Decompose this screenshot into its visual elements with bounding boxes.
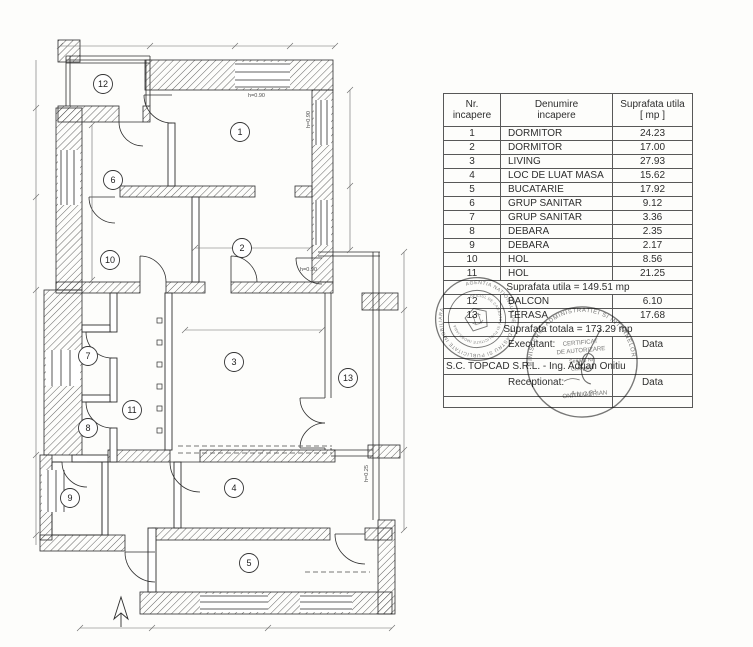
room-label-1: 1 [231,123,250,142]
svg-text:8: 8 [85,423,90,433]
table-row: 10HOL8.56 [444,253,693,267]
room-label-7: 7 [79,347,98,366]
svg-text:5: 5 [246,558,251,568]
cell-area: 17.00 [613,141,693,155]
svg-text:10: 10 [105,255,115,265]
room-label-2: 2 [233,239,252,258]
table-row: 4LOC DE LUAT MASA15.62 [444,169,693,183]
cell-name: DORMITOR [501,127,613,141]
cell-area: 27.93 [613,155,693,169]
cell-name: DEBARA [501,239,613,253]
cell-nr: 4 [444,169,501,183]
annotation-label: h=0.90 [248,93,265,99]
svg-text:3: 3 [231,357,236,367]
cell-nr: 2 [444,141,501,155]
room-label-10: 10 [101,251,120,270]
header-name: Denumire incapere [501,94,613,127]
cell-nr: 5 [444,183,501,197]
svg-text:12: 12 [98,79,108,89]
svg-text:2: 2 [239,243,244,253]
annotation-label: h=0.90 [300,267,317,273]
stamp-ring-inner-text: OFICIUL DE CADASTRU SI PUBLICITATE IMOBI… [445,287,508,350]
svg-text:9: 9 [67,493,72,503]
table-row: 3LIVING27.93 [444,155,693,169]
cell-name: LIVING [501,155,613,169]
room-label-4: 4 [225,479,244,498]
north-arrow-icon [114,597,128,627]
room-label-6: 6 [104,171,123,190]
cell-name: BUCATARIE [501,183,613,197]
cell-nr: 8 [444,225,501,239]
cell-area: 24.23 [613,127,693,141]
cell-name: DEBARA [501,225,613,239]
cell-name: HOL [501,253,613,267]
cell-area: 3.36 [613,211,693,225]
cell-nr: 7 [444,211,501,225]
cell-area: 2.17 [613,239,693,253]
scanned-floor-plan-page: h=0.90 h=0.90 h=0.90 h=0.25 1 2 3 4 5 6 … [0,0,753,647]
svg-text:OFICIUL DE CADASTRU SI PUBLICI: OFICIUL DE CADASTRU SI PUBLICITATE IMOBI… [445,287,508,350]
room-label-13: 13 [339,369,358,388]
cell-name: GRUP SANITAR [501,197,613,211]
cell-area: 8.56 [613,253,693,267]
svg-text:7: 7 [85,351,90,361]
table-row: 2DORMITOR17.00 [444,141,693,155]
stamp-signature [560,329,606,386]
svg-text:6: 6 [110,175,115,185]
table-row: 9DEBARA2.17 [444,239,693,253]
floor-plan: h=0.90 h=0.90 h=0.90 h=0.25 1 2 3 4 5 6 … [0,0,440,647]
cell-area: 21.25 [613,267,693,281]
cell-name: HOL [501,267,613,281]
svg-text:4: 4 [231,483,236,493]
cell-area: 2.35 [613,225,693,239]
cell-name: DORMITOR [501,141,613,155]
cell-name: GRUP SANITAR [501,211,613,225]
cell-nr: 3 [444,155,501,169]
header-area: Suprafata utila [ mp ] [613,94,693,127]
cell-area: 17.92 [613,183,693,197]
stamp-line: ONITIU ADRIAN [562,389,607,400]
table-row: 7GRUP SANITAR3.36 [444,211,693,225]
cell-nr: 1 [444,127,501,141]
cell-nr: 9 [444,239,501,253]
certificate-round-stamp: MINISTERUL ADMINISTRATIEI SI INTERNELOR … [518,298,646,426]
cell-name: LOC DE LUAT MASA [501,169,613,183]
stamp-emblem [463,305,491,332]
annotation-label: h=0.25 [364,465,370,482]
stamp-ring-outer-text: AGENTIA NATIONALA DE CADASTRU SI PUBLICI… [428,270,526,368]
svg-text:AGENTIA NATIONALA DE CADASTRU: AGENTIA NATIONALA DE CADASTRU SI PUBLICI… [428,270,526,368]
room-label-3: 3 [225,353,244,372]
room-label-5: 5 [240,554,259,573]
svg-text:11: 11 [127,405,136,415]
table-header-row: Nr. incapere Denumire incapere Suprafata… [444,94,693,127]
table-row: 5BUCATARIE17.92 [444,183,693,197]
room-label-8: 8 [79,419,98,438]
table-row: 8DEBARA2.35 [444,225,693,239]
room-label-11: 11 [123,401,142,420]
svg-text:13: 13 [343,373,353,383]
room-label-9: 9 [61,489,80,508]
cell-area: 15.62 [613,169,693,183]
table-row: 6GRUP SANITAR9.12 [444,197,693,211]
cell-nr: 6 [444,197,501,211]
annotation-label: h=0.90 [306,111,312,128]
table-row: 1DORMITOR24.23 [444,127,693,141]
cell-area: 9.12 [613,197,693,211]
dashed-lines [178,446,370,572]
svg-text:1: 1 [237,127,242,137]
room-label-12: 12 [94,75,113,94]
cell-nr: 10 [444,253,501,267]
header-nr: Nr. incapere [444,94,501,127]
corridor-ticks [157,318,162,433]
